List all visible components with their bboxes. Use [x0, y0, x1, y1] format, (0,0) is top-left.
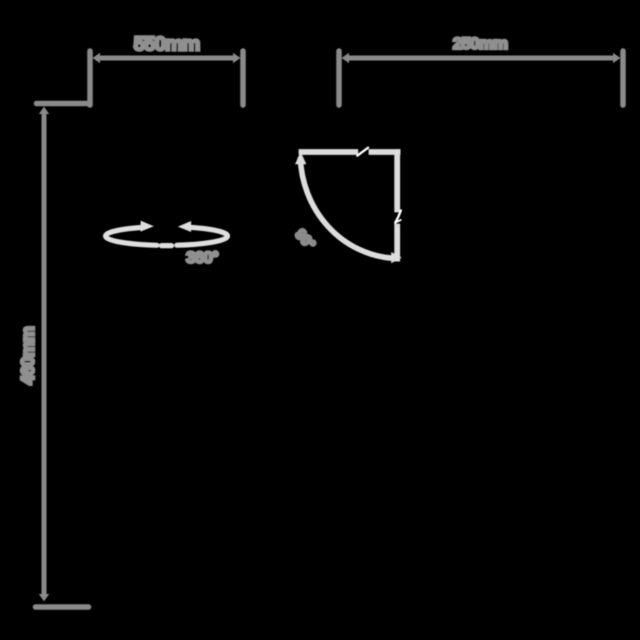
svg-text:250mm: 250mm — [453, 34, 508, 53]
svg-text:460mm: 460mm — [18, 327, 38, 385]
svg-text:550mm: 550mm — [134, 33, 200, 56]
svg-text:360°: 360° — [186, 248, 219, 267]
